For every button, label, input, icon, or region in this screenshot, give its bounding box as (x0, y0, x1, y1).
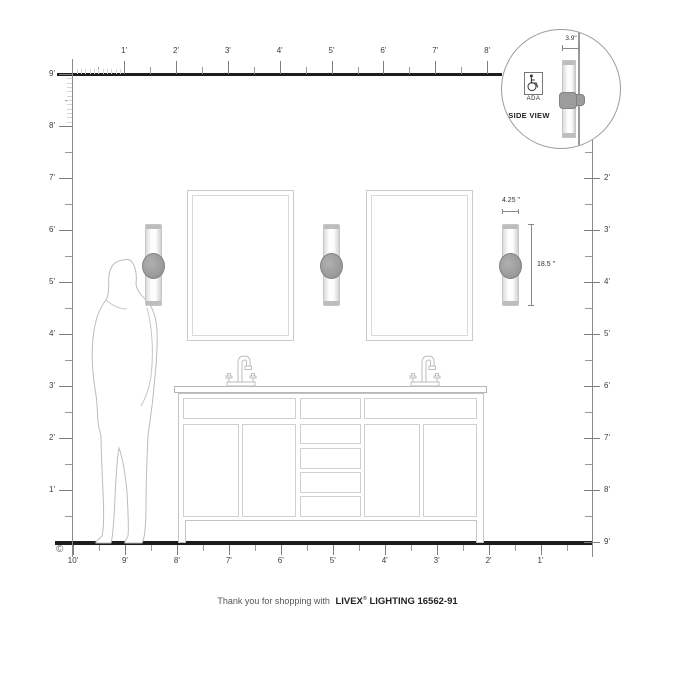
ruler-tick (281, 545, 282, 555)
vanity-drawer (300, 448, 361, 469)
side-view-mount (576, 94, 585, 106)
ruler-inch-tick (120, 69, 121, 74)
vanity-top-rail (364, 398, 477, 419)
ruler-tick (254, 67, 255, 74)
ruler-inch-tick (67, 78, 72, 79)
dimension-line (502, 211, 519, 212)
sconce-cap (563, 61, 575, 65)
ruler-label: 8' (36, 121, 55, 131)
ruler-tick (584, 282, 600, 283)
sconce-cap (503, 301, 518, 305)
ruler-tick (65, 204, 72, 205)
ruler-tick (435, 61, 436, 74)
ruler-tick (584, 230, 600, 231)
ruler-inch-tick (116, 69, 117, 74)
ruler-label: 4' (375, 556, 395, 566)
ruler-label: 1' (114, 46, 134, 56)
ruler-tick (177, 545, 178, 555)
ruler-tick (585, 152, 593, 153)
ruler-tick (585, 308, 593, 309)
ruler-tick (65, 256, 72, 257)
sconce-cap (563, 133, 575, 137)
ruler-tick (358, 67, 359, 74)
dimension-tick (528, 224, 534, 225)
vanity-door (242, 424, 296, 517)
ruler-tick (489, 545, 490, 555)
ruler-tick (584, 438, 600, 439)
ada-compliance-box (524, 72, 543, 95)
ruler-label: 6' (604, 381, 622, 391)
ruler-inch-tick (111, 69, 112, 74)
ruler-tick (124, 61, 125, 74)
vanity-door (364, 424, 420, 517)
ruler-tick (585, 204, 593, 205)
ruler-tick (59, 438, 72, 439)
faucet-left (221, 351, 261, 387)
ruler-tick (585, 412, 593, 413)
ruler-tick (584, 386, 600, 387)
ruler-tick (150, 67, 151, 74)
ruler-label: 5' (323, 556, 343, 566)
ruler-tick (585, 256, 593, 257)
ruler-tick (59, 230, 72, 231)
ruler-tick (515, 545, 516, 551)
ruler-tick (409, 67, 410, 74)
ada-label: ADA (521, 96, 546, 102)
ruler-inch-tick (67, 113, 72, 114)
fixture-width-dimension: 4.25 " (494, 197, 528, 204)
vanity-top-rail (183, 398, 296, 419)
ruler-tick (65, 412, 72, 413)
ruler-inch-tick (85, 69, 86, 74)
ruler-tick (332, 61, 333, 74)
ruler-tick (59, 334, 72, 335)
ruler-tick (255, 545, 256, 551)
ruler-label: 3' (218, 46, 238, 56)
ruler-label: 8' (167, 556, 187, 566)
ruler-tick (65, 152, 72, 153)
ruler-label: 2' (166, 46, 186, 56)
vanity-drawer (300, 472, 361, 493)
wall-sconce-center (323, 224, 340, 306)
ruler-tick (125, 545, 126, 555)
ruler-inch-tick (98, 69, 99, 74)
ruler-tick (385, 545, 386, 555)
ruler-tick (203, 545, 204, 551)
ruler-tick (333, 545, 334, 555)
ruler-label: 2' (36, 433, 55, 443)
wheelchair-icon (525, 73, 542, 94)
ruler-inch-tick (67, 83, 72, 84)
ruler-tick (280, 61, 281, 74)
sconce-cap (146, 225, 161, 229)
ruler-label: 2' (604, 173, 622, 183)
ruler-tick (229, 545, 230, 555)
ruler-tick (99, 545, 100, 551)
registered-mark: ® (363, 596, 367, 602)
ruler-label: 9' (115, 556, 135, 566)
vanity-leg (178, 520, 186, 543)
vanity-top-rail (300, 398, 361, 419)
ruler-tick (65, 360, 72, 361)
vanity-door (423, 424, 477, 517)
dimension-diagram-canvas: 4.25 " 18.5 " 1'2'3'4'5'6'7'8' 9'8'7'6'5… (0, 0, 675, 675)
ruler-inch-tick (67, 122, 72, 123)
sconce-cap (324, 301, 339, 305)
ruler-label: 9' (36, 69, 55, 79)
ruler-inch-tick (94, 69, 95, 74)
ruler-tick (59, 178, 72, 179)
sconce-backplate (320, 253, 343, 279)
vanity-leg (476, 520, 484, 543)
ruler-inch-tick (107, 69, 108, 74)
ruler-label: 5' (604, 329, 622, 339)
ruler-inch-tick (67, 100, 72, 101)
ruler-inch-tick (103, 69, 104, 74)
ruler-inch-tick (67, 104, 72, 105)
ruler-inch-tick (81, 69, 82, 74)
ruler-inch-tick (67, 96, 72, 97)
dimension-line (562, 48, 580, 49)
ruler-inch-tick (67, 117, 72, 118)
vanity-drawer (300, 424, 361, 444)
ruler-tick (73, 545, 74, 555)
ruler-tick (584, 542, 600, 543)
ruler-tick (437, 545, 438, 555)
ruler-inch-tick (90, 69, 91, 74)
ruler-label: 3' (36, 381, 55, 391)
ruler-label: 3' (604, 225, 622, 235)
ruler-tick (59, 282, 72, 283)
sconce-cap (324, 225, 339, 229)
ruler-tick (567, 545, 568, 551)
ruler-label: 4' (36, 329, 55, 339)
ruler-tick (59, 386, 72, 387)
copyright-symbol: © (56, 544, 63, 555)
sconce-cap (503, 225, 518, 229)
ruler-tick (65, 516, 72, 517)
ruler-label: 10' (63, 556, 83, 566)
ruler-label: 9' (604, 537, 622, 547)
wall-sconce-left (145, 224, 162, 306)
ruler-tick (584, 178, 600, 179)
product-number: LIGHTING 16562-91 (369, 596, 457, 607)
ruler-tick (585, 360, 593, 361)
ruler-tick (59, 490, 72, 491)
ruler-label: 5' (36, 277, 55, 287)
dimension-tick (518, 209, 519, 214)
fixture-height-dimension: 18.5 " (537, 261, 567, 268)
ruler-inch-tick (77, 69, 78, 74)
ruler-tick (65, 464, 72, 465)
dimension-line (531, 224, 532, 306)
ruler-inch-tick (67, 87, 72, 88)
ruler-label: 2' (479, 556, 499, 566)
ruler-tick (359, 545, 360, 551)
ruler-tick (59, 126, 72, 127)
ruler-tick (151, 545, 152, 551)
ruler-tick (59, 74, 72, 75)
ruler-label: 6' (271, 556, 291, 566)
side-view-label: SIDE VIEW (502, 111, 556, 120)
ruler-tick (65, 308, 72, 309)
ruler-tick (541, 545, 542, 555)
ruler-inch-tick (67, 91, 72, 92)
ruler-tick (306, 67, 307, 74)
ruler-label: 5' (322, 46, 342, 56)
ruler-label: 1' (531, 556, 551, 566)
ruler-tick (228, 61, 229, 74)
ruler-tick (585, 464, 593, 465)
sconce-cap (146, 301, 161, 305)
vanity-drawer (300, 496, 361, 517)
ruler-tick (461, 67, 462, 74)
dimension-tick (528, 305, 534, 306)
ruler-tick (307, 545, 308, 551)
ruler-label: 1' (36, 485, 55, 495)
ruler-label: 4' (270, 46, 290, 56)
ruler-label: 6' (36, 225, 55, 235)
ruler-label: 6' (373, 46, 393, 56)
ruler-label: 7' (219, 556, 239, 566)
wall-sconce-dimensioned (502, 224, 519, 306)
vanity-door (183, 424, 239, 517)
footer-caption: Thank you for shopping with LIVEX® LIGHT… (0, 596, 675, 607)
ruler-label: 7' (604, 433, 622, 443)
sconce-backplate (142, 253, 165, 279)
ruler-tick (463, 545, 464, 551)
ruler-label: 8' (604, 485, 622, 495)
side-view-backplate (559, 92, 577, 109)
vanity-countertop (174, 386, 487, 393)
left-ruler-line (72, 59, 73, 557)
sconce-backplate (499, 253, 522, 279)
ruler-label: 7' (425, 46, 445, 56)
ruler-label: 4' (604, 277, 622, 287)
ruler-label: 8' (477, 46, 497, 56)
faucet-right (405, 351, 445, 387)
dimension-tick (502, 209, 503, 214)
ruler-tick (411, 545, 412, 551)
ruler-label: 3' (427, 556, 447, 566)
side-view-inset: 3.9" ADA SIDE VIEW (501, 29, 621, 149)
brand-name: LIVEX (335, 596, 362, 607)
ruler-tick (585, 516, 593, 517)
ruler-tick (383, 61, 384, 74)
footer-thanks-text: Thank you for shopping with (217, 596, 330, 606)
mirror-right (366, 190, 473, 341)
right-ruler-line (592, 140, 593, 557)
ruler-tick (176, 61, 177, 74)
ruler-tick (584, 334, 600, 335)
ruler-tick (584, 490, 600, 491)
ruler-label: 7' (36, 173, 55, 183)
fixture-depth-dimension: 3.9" (554, 35, 588, 42)
ruler-tick (487, 61, 488, 74)
ruler-tick (202, 67, 203, 74)
ruler-inch-tick (67, 109, 72, 110)
mirror-left (187, 190, 294, 341)
